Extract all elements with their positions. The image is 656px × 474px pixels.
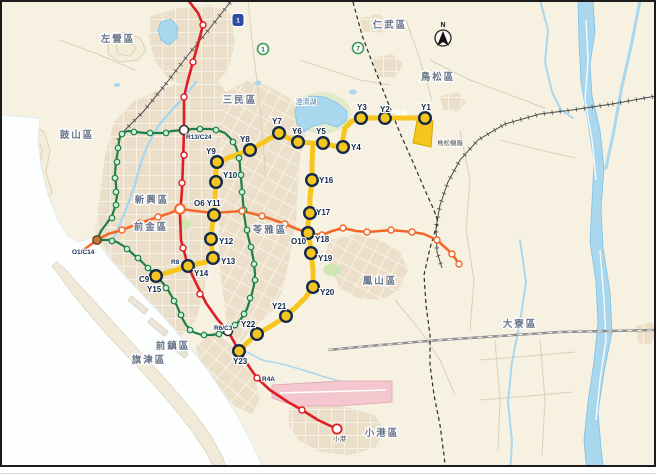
lightrail-station [109,215,115,221]
yellow-station-Y21 [280,310,292,322]
lightrail-station [113,189,119,195]
station-label: Y22 [241,320,256,329]
lightrail-station [109,238,115,244]
lightrail-station [114,159,120,165]
yellow-station-Y15 [150,270,162,282]
yellow-station-Y22 [251,328,263,340]
red-station [200,22,206,28]
lightrail-station [248,244,254,250]
district-label: 前鎮區 [156,340,191,352]
station-label: Y1 [421,103,431,112]
yellow-station-Y12 [205,233,217,245]
orange-station [239,208,245,214]
station-label: Y15 [147,285,162,294]
station-label: R13/C24 [186,134,212,141]
district-label: 左營區 [100,33,136,45]
district-label: 鳥松區 [421,71,456,83]
yellow-station-Y5 [317,137,329,149]
district-label: 苓雅區 [252,224,288,236]
lightrail-station [238,172,244,178]
station-label: O1/C14 [72,249,95,256]
yellow-station-Y23 [233,345,245,357]
poi-label: 澄清路 [390,109,407,117]
district-label: 旗津區 [132,354,167,366]
poi-label: 小港 [333,434,347,443]
lightrail-station [171,298,177,304]
railway-tick [552,110,553,115]
lightrail-station [230,139,236,145]
yellow-station-Y20 [307,281,319,293]
station-label: Y6 [292,127,302,136]
station-label: Y23 [233,357,248,366]
station-label: C9 [139,275,150,284]
lightrail-station [247,295,253,301]
red-station [181,94,187,100]
district-label: 大寮區 [503,318,538,330]
lightrail-station [239,189,245,195]
railway-tick [560,109,561,114]
lightrail-station [163,130,169,136]
district-label: 三民區 [223,95,258,106]
orange-station [364,229,370,235]
orange-station [456,261,462,267]
highway-shield-number: 7 [356,46,360,53]
interchange-station-red-terminal [332,424,341,433]
bottom-margin [0,467,656,474]
interchange-station-O1-C14 [93,236,101,244]
district-label: 鳳山區 [363,275,398,287]
district-label: 鼓山區 [60,129,95,141]
lightrail-station [241,311,247,317]
lightrail-station [216,331,222,337]
lightrail-station [187,327,193,333]
lightrail-station [147,130,153,136]
station-label: Y21 [272,302,287,311]
yellow-station-Y7 [273,127,285,139]
yellow-station-Y4 [337,141,349,153]
yellow-station-Y9 [211,156,223,168]
map-image: 117N左營區仁武區鳥松區三民區鼓山區新興區前金區苓雅區前鎮區旗津區鳳山區大寮區… [0,0,656,474]
railway-tick [568,108,569,113]
orange-station [388,227,394,233]
highway-shield-number: 1 [261,47,265,54]
red-station [254,375,260,381]
station-label: Y8 [240,135,250,144]
lightrail-station [197,126,203,132]
red-station [190,59,196,65]
orange-station [340,225,346,231]
lightrail-station [201,332,207,338]
park [323,264,341,276]
lightrail-station [213,127,219,133]
lightrail-station [251,261,257,267]
lightrail-station [145,265,151,271]
yellow-station-Y14 [182,260,194,272]
station-label: Y16 [319,176,334,185]
map-svg: 117N左營區仁武區鳥松區三民區鼓山區新興區前金區苓雅區前鎮區旗津區鳳山區大寮區… [0,0,656,474]
lightrail-station [178,312,184,318]
station-label: Y3 [357,103,367,112]
yellow-station-Y8 [244,144,256,156]
station-label: Y19 [318,254,333,263]
lightrail-station [244,227,250,233]
station-label: Y10 [223,171,238,180]
poi-label: 鳥松機廠 [437,138,464,147]
station-label: Y18 [315,235,330,244]
station-label: R4A [262,376,275,383]
station-label: Y7 [272,117,282,126]
yellow-station-Y6 [292,136,304,148]
interchange-station-O5-R10 [175,204,185,214]
lightrail-station [113,202,119,208]
lightrail-station [112,175,118,181]
district-label: 小港區 [364,427,400,439]
lightrail-station [124,246,130,252]
yellow-station-Y11 [208,209,220,221]
lightrail-station [135,255,141,261]
station-label: O10 [291,237,307,246]
district-label: 仁武區 [373,19,408,31]
yellow-station-Y1 [419,112,431,124]
station-label: Y9 [206,147,216,156]
yellow-station-Y10 [210,176,222,188]
station-label: Y17 [316,208,331,217]
orange-station [155,214,161,220]
yellow-station-Y3 [355,112,367,124]
station-label: Y2 [380,105,390,114]
lightrail-station [232,322,238,328]
red-station [180,245,186,251]
district-label: 新興區 [135,194,170,206]
yellow-station-Y17 [304,207,316,219]
lightrail-station [236,155,242,161]
station-label: R6/C3 [214,325,233,332]
lightrail-station [252,277,258,283]
lightrail-station [163,285,169,291]
district-label: 前金區 [134,221,169,233]
station-label: Y12 [219,237,234,246]
red-station [197,291,203,297]
compass-north-label: N [440,22,445,29]
poi-label: 澄清湖 [296,97,317,106]
station-label: Y13 [221,257,236,266]
station-label: O6 Y11 [194,199,221,208]
station-label: Y5 [316,127,326,136]
station-label: R8 [171,259,180,266]
station-label: Y20 [320,288,335,297]
orange-station [119,227,125,233]
red-station [181,152,187,158]
orange-station [434,237,440,243]
lightrail-station [115,145,121,151]
railway-tick [544,111,545,116]
pond [349,90,357,95]
station-label: Y4 [351,143,361,152]
pond [255,81,262,86]
orange-station [259,213,265,219]
station-label: Y14 [194,269,209,278]
lightrail-station [119,131,125,137]
red-station [179,180,185,186]
yellow-station-Y16 [306,174,318,186]
yellow-station-Y19 [305,247,317,259]
orange-station [449,251,455,257]
yellow-station-Y13 [207,252,219,264]
orange-station [409,229,415,235]
highway-shield-number: 1 [236,18,240,25]
pond [114,83,120,87]
red-station [299,407,305,413]
lightrail-station [131,129,137,135]
